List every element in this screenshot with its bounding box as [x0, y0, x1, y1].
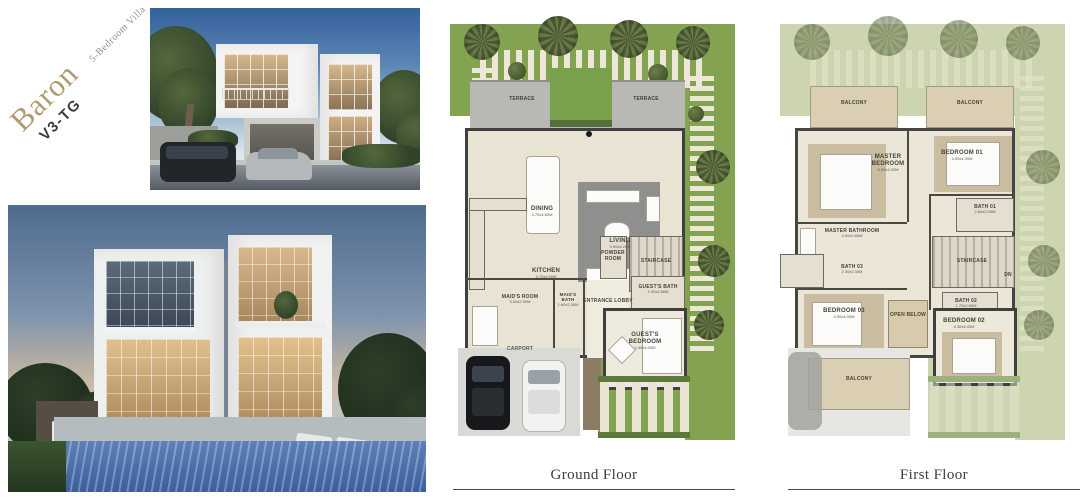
- palm-top-view: [1026, 150, 1060, 184]
- room-label-bedroom-02: BEDROOM 024.30x4.00M: [942, 318, 986, 330]
- label-text: OPEN BELOW: [890, 312, 926, 318]
- label-text: KITCHEN: [532, 268, 560, 274]
- palm-top-view: [868, 16, 908, 56]
- palm-top-view: [1028, 245, 1060, 277]
- sports-car-cabin: [258, 148, 298, 159]
- label-text: DN: [1004, 272, 1012, 278]
- room-label-guests-bedroom: GUEST'S BEDROOM4.30x4.00M: [615, 332, 675, 351]
- dim-text: 2.60x2.00M: [958, 210, 1012, 215]
- label-text: POWDER ROOM: [601, 250, 625, 262]
- swimming-pool: [54, 441, 426, 492]
- palm-top-view: [940, 20, 978, 58]
- interior-wall: [583, 278, 585, 358]
- room-label-bath-03: BATH 032.30x2.30M: [832, 264, 872, 275]
- label-text: GUEST'S BEDROOM: [629, 332, 662, 345]
- lit-interior-glazing: [238, 337, 322, 421]
- ground-floor-caption: Ground Floor: [453, 467, 735, 490]
- label-text: BALCONY: [957, 100, 983, 106]
- bush-top-view: [508, 62, 526, 80]
- room-label-powder-room: POWDER ROOM: [598, 250, 628, 262]
- lawn: [8, 441, 66, 492]
- caption-text: Ground Floor: [551, 467, 638, 483]
- palm-top-view: [1024, 310, 1054, 340]
- room-label-carport: CARPORT: [490, 346, 550, 352]
- room-label-bath-01: BATH 012.60x2.00M: [958, 204, 1012, 215]
- palm-top-view: [464, 24, 500, 60]
- room-label-master-bathroom: MASTER BATHROOM3.00x2.60M: [822, 228, 882, 239]
- pool-deck: [54, 417, 426, 443]
- room-label-master-bedroom: MASTER BEDROOM5.00x4.20M: [860, 154, 916, 173]
- room-label-dn: DN: [994, 272, 1022, 278]
- garden-path: [583, 358, 601, 430]
- room-label-staircase: STAIRCASE: [626, 258, 686, 264]
- hedge-strip: [598, 432, 690, 438]
- bed: [952, 338, 996, 374]
- room-label-terrace-left: TERRACE: [494, 96, 550, 102]
- palm-top-view: [676, 26, 710, 60]
- palm-top-view: [538, 16, 578, 56]
- label-text: BEDROOM 02: [943, 318, 985, 324]
- room-label-terrace-right: TERRACE: [618, 96, 674, 102]
- dim-text: 4.00x4.00M: [822, 315, 866, 320]
- room-label-staircase: STAIRCASE: [942, 258, 1002, 264]
- stepping-stones-faded: [930, 382, 1020, 432]
- palm-top-view: [1006, 26, 1040, 60]
- ground-floor-plan: TERRACE TERRACE DINING3.70x4.60M LIVING4…: [450, 10, 735, 460]
- dining-table: [526, 156, 560, 234]
- palm-top-view: [794, 24, 830, 60]
- interior-wall: [795, 222, 907, 224]
- label-text: STAIRCASE: [957, 258, 987, 264]
- car-roof: [528, 390, 560, 414]
- brochure-page: Baron 5-Bedroom Villa V3-TG: [0, 0, 1080, 500]
- room-label-bedroom-03: BEDROOM 034.00x4.00M: [822, 308, 866, 320]
- room-label-open-below: OPEN BELOW: [888, 312, 928, 318]
- palm-top-view: [696, 150, 730, 184]
- interior-wall: [553, 278, 555, 358]
- dim-text: 4.30x4.00M: [942, 325, 986, 330]
- balcony-rail: [222, 88, 290, 99]
- room-label-guests-bath: GUEST'S BATH1.90x2.60M: [636, 284, 680, 295]
- label-text: ENTRANCE LOBBY: [583, 298, 632, 304]
- bush-top-view: [688, 106, 704, 122]
- label-text: TERRACE: [509, 96, 535, 102]
- interior-wall: [907, 128, 909, 222]
- label-text: LIVING: [609, 238, 630, 244]
- caption-text: First Floor: [900, 467, 968, 483]
- room-label-balcony-right: BALCONY: [940, 100, 1000, 106]
- window-glazing: [106, 261, 194, 327]
- structural-column: [586, 131, 592, 137]
- balcony-bottom-deck: [808, 358, 910, 410]
- lit-interior-glazing: [106, 339, 210, 421]
- dim-text: 1.90x2.60M: [636, 290, 680, 295]
- label-text: DINING: [531, 206, 553, 212]
- balcony-left: [810, 86, 898, 128]
- room-label-balcony-bottom-2: BALCONY: [829, 376, 889, 382]
- room-label-maids-room: MAID'S ROOM3.00x2.30M: [490, 294, 550, 305]
- dim-text: 2.30x2.30M: [832, 270, 872, 275]
- dim-text: 3.70x4.00M: [516, 275, 576, 280]
- maids-bed: [472, 306, 498, 346]
- label-text: MAID'S BATH: [560, 292, 577, 302]
- room-label-living: LIVING4.90x4.20M: [590, 238, 650, 250]
- balcony-rail: [104, 327, 196, 332]
- pergola-slats: [810, 50, 1035, 88]
- terrace-garden-patch: [550, 68, 612, 126]
- dim-text: 3.00x2.30M: [490, 300, 550, 305]
- dim-text: 1.70x2.60M: [946, 304, 986, 309]
- car-roof: [472, 388, 504, 416]
- open-below-void: [888, 300, 928, 348]
- dim-text: 3.70x4.60M: [512, 213, 572, 218]
- palm-top-view: [610, 20, 648, 58]
- car-windshield: [472, 366, 504, 382]
- kitchen-counter: [469, 198, 485, 290]
- label-text: STAIRCASE: [641, 258, 671, 264]
- car-gray-top-view-faded: [788, 352, 822, 430]
- car-windshield: [528, 370, 560, 384]
- label-text: TERRACE: [633, 96, 659, 102]
- hedge-strip-faded: [928, 376, 1020, 382]
- palm-top-view: [694, 310, 724, 340]
- room-label-dining: DINING3.70x4.60M: [512, 206, 572, 218]
- hedge: [342, 144, 420, 168]
- balcony-slab: [236, 323, 326, 329]
- first-floor-caption: First Floor: [788, 467, 1080, 490]
- label-text: MASTER BEDROOM: [872, 154, 905, 167]
- balcony-right: [926, 86, 1014, 128]
- label-text: BEDROOM 03: [823, 308, 865, 314]
- label-text: BALCONY: [846, 376, 872, 382]
- suv-windows: [166, 146, 228, 159]
- dim-text: 5.00x4.20M: [860, 168, 916, 173]
- photo-villa-exterior-day: [150, 8, 420, 190]
- room-label-bedroom-01: BEDROOM 014.00x4.00M: [940, 150, 984, 162]
- window-glazing: [224, 54, 288, 108]
- bed: [946, 142, 1000, 186]
- interior-wall: [929, 194, 1015, 196]
- interior-wall: [929, 194, 931, 310]
- armchair: [646, 196, 660, 222]
- first-floor-plan: BALCONY BALCONY MASTER BEDROOM5.00x4.20M…: [780, 10, 1065, 460]
- photo-villa-pool-dusk: [8, 205, 426, 492]
- window-glazing: [328, 64, 372, 110]
- stepping-stones: [600, 382, 690, 432]
- dim-text: 3.00x2.60M: [822, 234, 882, 239]
- sofa: [586, 190, 640, 203]
- label-text: BEDROOM 01: [941, 150, 983, 156]
- palm-top-view: [698, 245, 730, 277]
- label-text: BALCONY: [841, 100, 867, 106]
- hedge-strip: [550, 120, 612, 127]
- brand-block: Baron 5-Bedroom Villa V3-TG: [3, 0, 164, 151]
- room-label-bath-02: BATH 021.70x2.60M: [946, 298, 986, 309]
- label-text: CARPORT: [507, 346, 533, 352]
- hedge-strip-faded: [928, 432, 1020, 438]
- room-label-kitchen: KITCHEN3.70x4.00M: [516, 268, 576, 280]
- dim-text: 4.00x4.00M: [940, 157, 984, 162]
- room-label-balcony-left: BALCONY: [824, 100, 884, 106]
- interior-wall: [795, 288, 907, 290]
- room-label-entrance-lobby: ENTRANCE LOBBY: [578, 298, 638, 304]
- dim-text: 4.30x4.00M: [615, 346, 675, 351]
- balcony-plant: [274, 291, 298, 319]
- bath03-box: [780, 254, 824, 288]
